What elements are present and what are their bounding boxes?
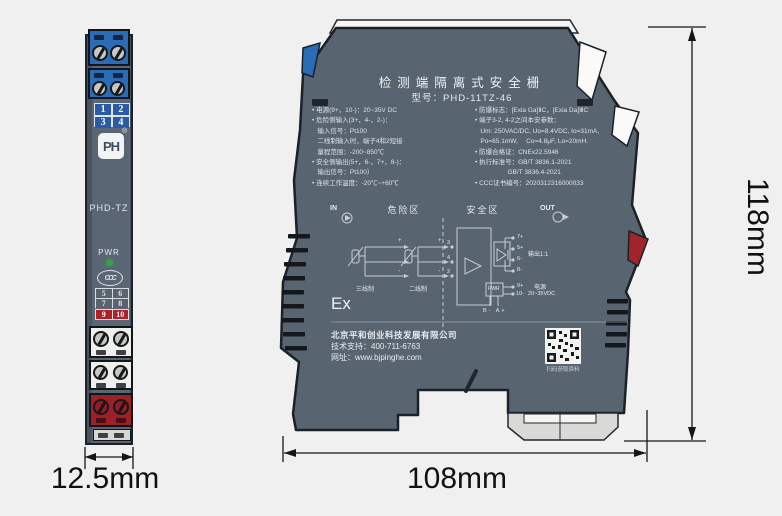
zone-safe-label: 安全区 bbox=[459, 203, 507, 216]
screw-icon bbox=[113, 331, 129, 347]
wire-slot bbox=[116, 350, 126, 355]
wire-slot bbox=[113, 35, 123, 40]
terminal-number: 9 bbox=[96, 310, 112, 319]
brand-logo: PH bbox=[98, 133, 124, 159]
pwr-box-label: PWR bbox=[488, 286, 500, 292]
terminal-block-blue-1 bbox=[88, 29, 130, 66]
output-terminal-label: 6- bbox=[517, 256, 522, 262]
terminal-number-grid-red: 9 10 bbox=[95, 309, 129, 320]
support-line: 技术支持：400-711-6763 bbox=[331, 341, 420, 352]
qr-code bbox=[545, 328, 581, 364]
terminal-number: 1 bbox=[95, 104, 111, 115]
terminal-number: 3 bbox=[95, 117, 111, 128]
spec-line: GB/T 3836.4-2021 bbox=[475, 168, 599, 178]
dimension-side-width: 108mm bbox=[377, 462, 537, 496]
screw-icon bbox=[93, 365, 108, 380]
pwr-label: PWR bbox=[85, 248, 133, 257]
logo-text: PH bbox=[103, 139, 119, 154]
terminal-block-blue-2 bbox=[88, 68, 130, 99]
wire-slot bbox=[114, 433, 124, 438]
dimension-height: 118mm bbox=[740, 178, 774, 298]
sensor-2wire-label: 二线制 bbox=[402, 284, 434, 293]
terminal-number: 10 bbox=[113, 310, 129, 319]
spec-line: 二线制输入时，端子4和2短接 bbox=[312, 137, 405, 147]
qr-caption: 扫码获取资料 bbox=[540, 365, 586, 373]
terminal-number: 2 bbox=[113, 104, 129, 115]
spec-line: • CCC证书编号：2020312316000033 bbox=[475, 179, 599, 189]
ccc-mark: CCC bbox=[97, 270, 123, 286]
output-terminal-label: 5+ bbox=[517, 245, 523, 251]
wire-slot bbox=[96, 418, 106, 423]
side-title: 检测端隔离式安全栅 bbox=[312, 72, 612, 91]
polarity-plus: + bbox=[398, 238, 402, 244]
wire-slot bbox=[94, 35, 104, 40]
screw-icon bbox=[93, 399, 109, 415]
output-terminal-label: 8- bbox=[517, 267, 522, 273]
screw-icon bbox=[92, 45, 108, 61]
polarity-plus: + bbox=[438, 238, 442, 244]
battery-terminal-labels: B- A+ bbox=[483, 308, 507, 314]
wire-slot bbox=[116, 383, 126, 388]
website-line: 网址：www.bjpinghe.com bbox=[331, 352, 422, 363]
spec-line: • 防爆合格证：CNEx22.5946 bbox=[475, 148, 599, 158]
wire-slot bbox=[96, 383, 106, 388]
registered-mark: ® bbox=[122, 128, 127, 135]
product-drawing: 1 2 3 4 PH ® PHD-TZ PWR CCC 5 6 7 8 9 10 bbox=[0, 0, 782, 516]
screw-icon bbox=[110, 45, 126, 61]
terminal-number-grid-mid: 5 6 7 8 bbox=[95, 288, 129, 308]
terminal-number: 5 bbox=[96, 289, 112, 298]
screw-icon bbox=[93, 331, 109, 347]
wire-slot bbox=[94, 73, 104, 78]
power-range-label: 20~35VDC bbox=[528, 291, 555, 297]
out-label: OUT bbox=[540, 205, 555, 212]
input-terminal-label: 4 bbox=[447, 255, 450, 261]
screw-icon bbox=[92, 81, 107, 96]
spec-line: Po=65.1mW, Co=4.8μF, Lo=20mH. bbox=[475, 137, 599, 147]
wire-slot bbox=[98, 433, 108, 438]
wire-slot bbox=[113, 73, 123, 78]
terminal-number-grid-top: 1 2 3 4 bbox=[94, 103, 130, 127]
dimension-front-width: 12.5mm bbox=[35, 462, 175, 496]
ccc-text: CCC bbox=[105, 275, 116, 282]
in-label: IN bbox=[330, 205, 337, 212]
input-terminal-label: 2 bbox=[447, 269, 450, 275]
wire-slot bbox=[96, 350, 106, 355]
terminal-block-white-2 bbox=[89, 360, 133, 390]
spec-line: • 防爆标志：[Exia Ga]ⅡC，[Exia Da]ⅢC bbox=[475, 106, 599, 116]
polarity-minus: - bbox=[398, 268, 400, 274]
terminal-number: 4 bbox=[113, 117, 129, 128]
screw-icon bbox=[110, 81, 125, 96]
spec-line: • 连续工作温度：-20℃~+60℃ bbox=[312, 179, 405, 189]
spec-line: Um: 250VAC/DC, Uo=8.4VDC, Io=31mA, bbox=[475, 127, 599, 137]
wire-slot bbox=[116, 418, 126, 423]
terminal-block-white-1 bbox=[89, 326, 133, 358]
front-model-label: PHD-TZ bbox=[85, 203, 133, 213]
sensor-3wire-label: 三线制 bbox=[349, 284, 381, 293]
power-label: 电源 bbox=[534, 282, 546, 291]
spec-column-right: • 防爆标志：[Exia Ga]ⅡC，[Exia Da]ⅢC • 端子3-2, … bbox=[475, 106, 599, 189]
spec-line: • 电源(9+，10-)：20~35V DC bbox=[312, 106, 405, 116]
spec-line: • 端子3-2, 4-2之间本安参数： bbox=[475, 116, 599, 126]
spec-line: • 危险侧输入(3+，4-，2-)： bbox=[312, 116, 405, 126]
screw-icon bbox=[113, 365, 128, 380]
power-terminal-label: 9+ bbox=[517, 283, 523, 289]
screw-icon bbox=[113, 399, 129, 415]
spec-line: 输出信号：Pt100） bbox=[312, 168, 405, 178]
terminal-number: 8 bbox=[113, 299, 129, 308]
zone-danger-label: 危险区 bbox=[380, 203, 428, 216]
polarity-minus: - bbox=[438, 268, 440, 274]
spec-line: 输入信号：Pt100 bbox=[312, 127, 405, 137]
power-terminal-label: 10- bbox=[516, 291, 524, 297]
ex-mark: Ex bbox=[331, 294, 351, 314]
spec-line: • 安全侧输出(5+，6-，7+，8-)： bbox=[312, 158, 405, 168]
input-terminal-label: 3 bbox=[447, 240, 450, 246]
terminal-number: 7 bbox=[96, 299, 112, 308]
terminal-block-red bbox=[89, 393, 133, 427]
power-led-icon bbox=[106, 259, 113, 266]
spec-line: • 执行标准号：GB/T 3836.1-2021 bbox=[475, 158, 599, 168]
side-model-line: 型号：PHD-11TZ-46 bbox=[312, 90, 612, 104]
front-din-clip bbox=[93, 429, 131, 441]
terminal-number: 6 bbox=[113, 289, 129, 298]
company-name: 北京平和创业科技发展有限公司 bbox=[331, 329, 457, 341]
spec-line: 量程范围：-200~850℃ bbox=[312, 148, 405, 158]
output-ratio-label: 输出1:1 bbox=[528, 249, 548, 258]
spec-column-left: • 电源(9+，10-)：20~35V DC • 危险侧输入(3+，4-，2-)… bbox=[312, 106, 405, 189]
output-terminal-label: 7+ bbox=[517, 234, 523, 240]
